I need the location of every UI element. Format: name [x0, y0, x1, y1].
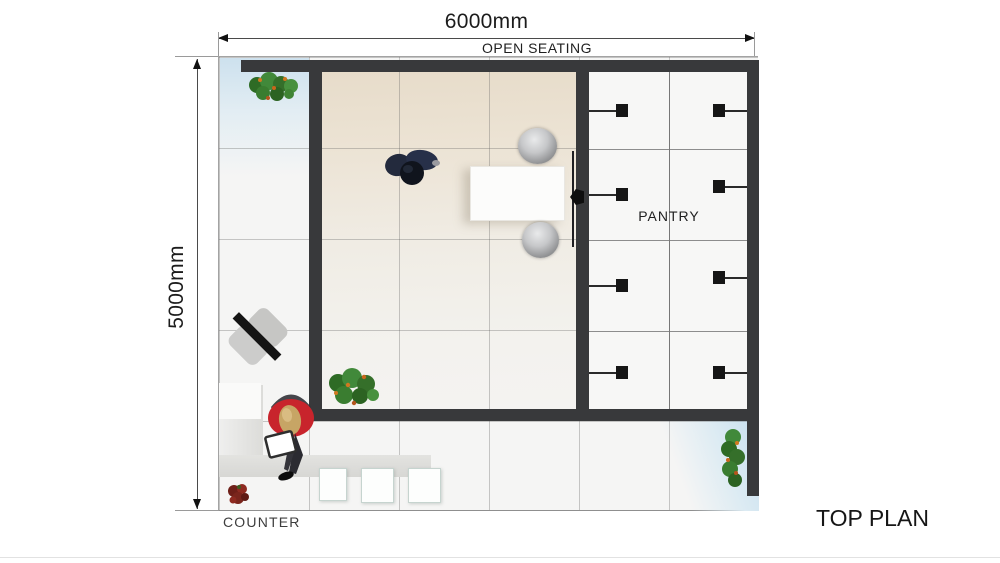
dimension-arrow-left-icon	[218, 34, 228, 42]
counter-top-white	[219, 383, 261, 419]
plan-area: PANTRY	[218, 56, 758, 511]
bench-icon	[227, 307, 299, 373]
cabinet-handle-icon	[616, 279, 628, 292]
cabinet-handle-icon	[616, 366, 628, 379]
cabinet-joint-line	[589, 149, 747, 150]
extension-line	[218, 32, 219, 56]
open-seating-label: OPEN SEATING	[437, 40, 637, 56]
cabinet-handle-icon	[616, 188, 628, 201]
stool	[361, 468, 394, 503]
cabinet-joint-line	[589, 331, 747, 332]
cabinet-divider-line	[669, 72, 670, 409]
dimension-arrow-up-icon	[193, 59, 201, 69]
page-footer-line	[0, 557, 1000, 558]
cabinet-handle-line	[725, 186, 747, 188]
extension-line	[754, 32, 755, 56]
pantry-cabinets: PANTRY	[589, 72, 747, 409]
width-dimension-label: 6000mm	[218, 10, 755, 34]
cabinet-handle-icon	[713, 180, 725, 193]
cabinet-handle-line	[725, 110, 747, 112]
cabinet-handle-icon	[616, 104, 628, 117]
stool	[319, 468, 347, 501]
extension-line	[175, 56, 218, 57]
cabinet-handle-line	[589, 110, 616, 112]
pantry-label: PANTRY	[599, 208, 739, 224]
stool	[408, 468, 441, 503]
chair-icon	[522, 222, 559, 258]
cabinet-handle-line	[589, 372, 616, 374]
floor-plan-canvas: 6000mm OPEN SEATING 5000mm	[0, 0, 1000, 563]
width-dimension-line	[218, 38, 755, 39]
cabinet-handle-line	[589, 285, 616, 287]
meeting-table	[470, 166, 565, 221]
cabinet-joint-line	[589, 240, 747, 241]
cabinet-handle-icon	[713, 271, 725, 284]
height-dimension-line	[197, 59, 198, 509]
wall-room-left	[309, 60, 322, 421]
person-standing-icon	[384, 147, 442, 191]
chair-icon	[518, 128, 557, 164]
cabinet-handle-icon	[713, 104, 725, 117]
plant-icon	[225, 481, 251, 508]
wall-pantry-left	[576, 60, 589, 421]
plant-icon	[717, 427, 749, 489]
extension-line	[175, 510, 218, 511]
height-dimension-label: 5000mm	[165, 242, 189, 332]
cabinet-handle-icon	[713, 366, 725, 379]
plant-icon	[247, 71, 299, 103]
cabinet-handle-line	[725, 372, 747, 374]
person-seated-icon	[264, 389, 318, 481]
plant-icon	[324, 365, 382, 411]
dimension-arrow-down-icon	[193, 499, 201, 509]
cabinet-handle-line	[725, 277, 747, 279]
plan-title: TOP PLAN	[816, 505, 929, 532]
counter-label: COUNTER	[223, 514, 333, 530]
cabinet-handle-line	[589, 194, 616, 196]
